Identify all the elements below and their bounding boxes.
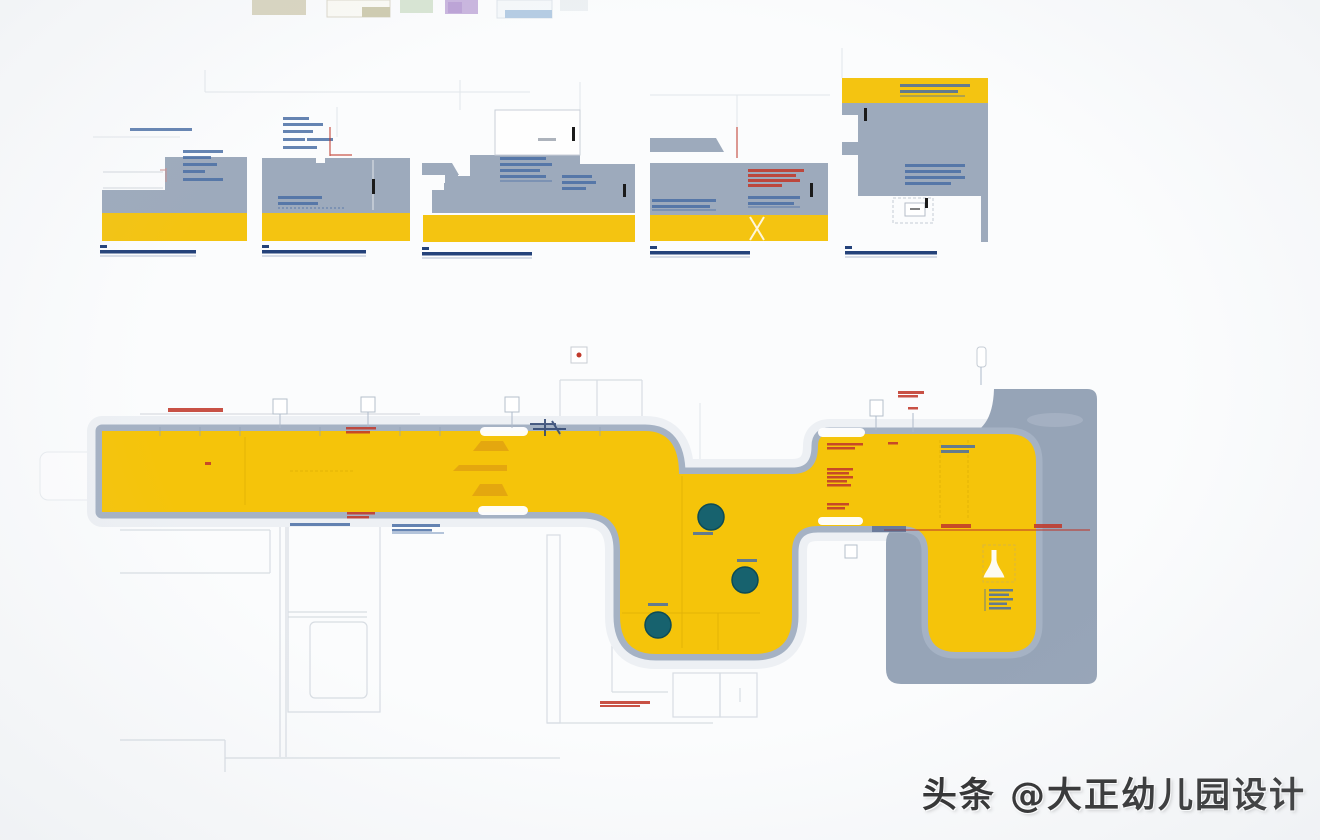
- ghost-smudge: [1027, 413, 1083, 427]
- section-detail-1: [100, 128, 247, 256]
- caption-line: [422, 247, 532, 258]
- dimension-arrow: [572, 127, 575, 141]
- tree-circle-1: [698, 504, 724, 530]
- section-detail-3: [422, 110, 635, 258]
- red-leader-line: [330, 127, 352, 156]
- caption-line: [650, 246, 750, 257]
- top-thumbnails: [252, 0, 588, 18]
- section-detail-5: [842, 78, 988, 257]
- dimension-arrow: [810, 183, 813, 197]
- detached-slab: [650, 138, 724, 152]
- dimension-arrow: [864, 108, 867, 121]
- tree-circle-2: [732, 567, 758, 593]
- dimension-arrow: [925, 198, 928, 208]
- section-detail-2: [262, 117, 410, 256]
- caption-line: [262, 245, 366, 256]
- watermark: 头条 @大正幼儿园设计: [922, 767, 1306, 818]
- drawing-canvas: [0, 0, 1320, 840]
- section-detail-4: [650, 127, 828, 257]
- datum-lines: [93, 48, 842, 137]
- dimension-arrow: [372, 179, 375, 194]
- caption-line: [845, 246, 937, 257]
- caption-line: [100, 245, 196, 256]
- floor-plan: [40, 347, 1097, 772]
- watermark-text: 头条 @大正幼儿园设计: [922, 776, 1306, 816]
- detached-slab: [422, 163, 459, 175]
- dimension-arrow: [623, 184, 626, 197]
- tree-circle-3: [645, 612, 671, 638]
- void-box: [495, 110, 580, 155]
